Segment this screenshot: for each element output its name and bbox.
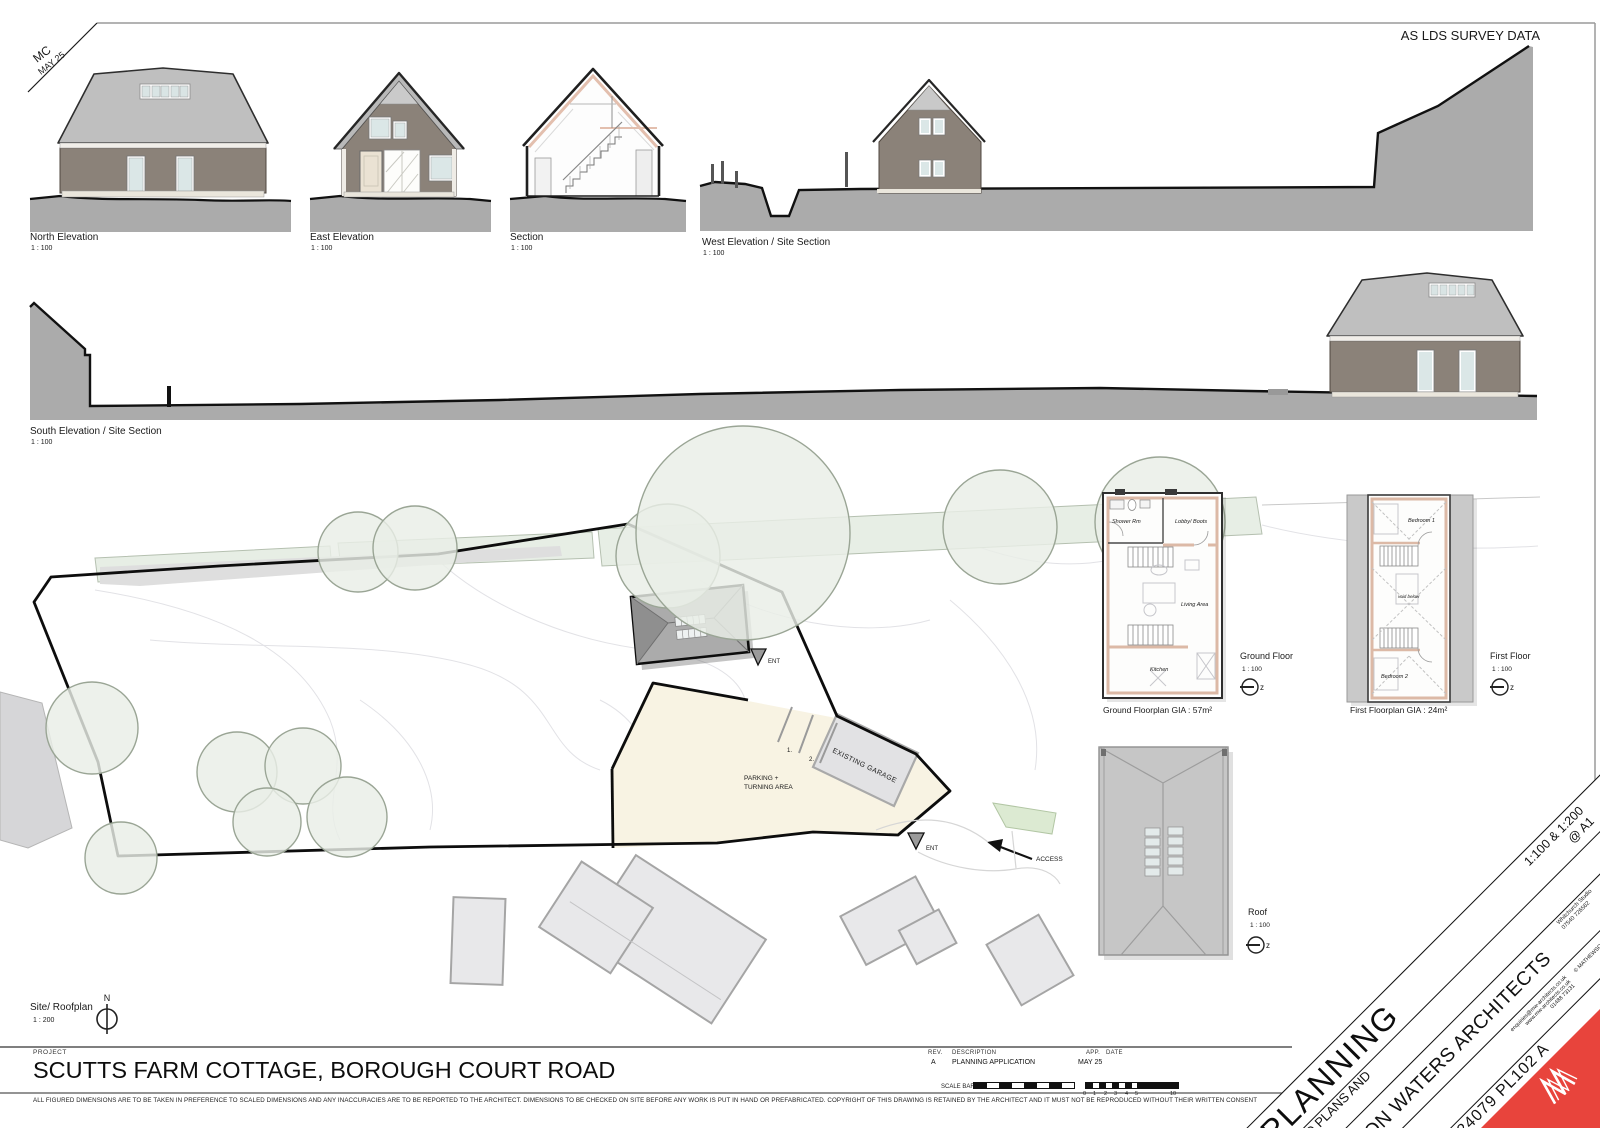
roof-plan-label: Roof — [1248, 907, 1268, 917]
site-plan-label: Site/ Roofplan — [30, 1002, 93, 1013]
site-plan-drawing: EXISTING GARAGE 1. 2. PARKING + TURNING … — [0, 426, 1540, 1034]
east-elevation-drawing: East Elevation 1 : 100 — [310, 73, 491, 252]
scalebar-2: 2 — [1104, 1091, 1107, 1097]
south-elevation-label: South Elevation / Site Section — [30, 426, 162, 437]
scalebar-0: 0 — [1083, 1091, 1086, 1097]
section-drawing: Section 1 : 100 — [510, 69, 686, 252]
ground-floorplan-drawing: Shower Rm Lobby/ Boots Living Area Kitch… — [1103, 489, 1293, 715]
ground-gia-label: Ground Floorplan GIA : 57m² — [1103, 705, 1212, 715]
project-label: PROJECT — [33, 1049, 67, 1056]
roof-north-letter: z — [1266, 941, 1270, 950]
scale-bar-2 — [1085, 1082, 1139, 1089]
east-elevation-label: East Elevation — [310, 232, 374, 243]
roof-plan-drawing: Roof 1 : 100 z — [1099, 747, 1270, 960]
scalebar-label: SCALE BAR — [941, 1084, 975, 1090]
project-title: SCUTTS FARM COTTAGE, BOROUGH COURT ROAD — [33, 1057, 615, 1084]
first-north-arrow-icon: z — [1490, 679, 1514, 695]
west-elevation-scale: 1 : 100 — [703, 250, 725, 257]
west-elevation-drawing: West Elevation / Site Section 1 : 100 — [700, 46, 1533, 257]
disclaimer-text: ALL FIGURED DIMENSIONS ARE TO BE TAKEN I… — [33, 1097, 1257, 1104]
scalebar-3: 3 — [1114, 1091, 1117, 1097]
roof-north-arrow-icon: z — [1246, 937, 1270, 953]
hedge-strip — [993, 803, 1056, 834]
scalebar-10: 10 — [1170, 1091, 1176, 1097]
rev-header: REV. — [928, 1050, 943, 1056]
section-scale: 1 : 100 — [511, 245, 533, 252]
revision-description: PLANNING APPLICATION — [952, 1059, 1035, 1066]
first-north-letter: z — [1510, 683, 1514, 692]
site-north-letter: N — [104, 993, 111, 1003]
room-label-living: Living Area — [1181, 602, 1208, 608]
date-header: DATE — [1106, 1050, 1123, 1056]
ent-label-1: ENT — [768, 659, 780, 665]
parking-label-2: TURNING AREA — [744, 784, 793, 791]
north-elevation-drawing: North Elevation 1 : 100 — [30, 68, 291, 252]
parking-bay-2: 2. — [809, 757, 814, 763]
sheet-graphics: MC MAY 25 AS LDS SURVEY DATA North Eleva… — [0, 0, 1600, 1128]
entrance-marker-2 — [908, 833, 924, 849]
ground-north-letter: z — [1260, 683, 1264, 692]
site-north-arrow-icon: N — [97, 993, 117, 1034]
south-elevation-drawing: South Elevation / Site Section 1 : 100 — [30, 273, 1537, 446]
north-elevation-label: North Elevation — [30, 232, 98, 243]
scale-bar-3 — [1137, 1082, 1179, 1089]
site-plan-scale: 1 : 200 — [33, 1017, 55, 1024]
scale-bar-1 — [973, 1082, 1075, 1089]
east-elevation-scale: 1 : 100 — [311, 245, 333, 252]
north-clerestory-windows — [142, 86, 188, 97]
room-label-bed2: Bedroom 2 — [1381, 674, 1408, 680]
first-floorplan-drawing: Bedroom 1 void below Bedroom 2 First Flo… — [1347, 495, 1531, 715]
revision-date: MAY 25 — [1078, 1059, 1102, 1066]
section-label: Section — [510, 232, 543, 243]
room-label-bed1: Bedroom 1 — [1408, 518, 1435, 524]
ground-floor-label: Ground Floor — [1240, 651, 1293, 661]
scalebar-4: 4 — [1125, 1091, 1128, 1097]
ent-label-2: ENT — [926, 846, 938, 852]
access-label: ACCESS — [1036, 856, 1063, 863]
checked-stamp: MC MAY 25 — [27, 38, 67, 77]
scalebar-5: 5 — [1135, 1091, 1138, 1097]
scalebar-1: 1 — [1093, 1091, 1096, 1097]
roof-plan-scale: 1 : 100 — [1250, 922, 1270, 929]
ground-floor-scale: 1 : 100 — [1242, 666, 1262, 673]
south-elevation-scale: 1 : 100 — [31, 439, 53, 446]
ground-north-arrow-icon: z — [1240, 679, 1264, 695]
description-header: DESCRIPTION — [952, 1050, 996, 1056]
room-label-shower: Shower Rm — [1112, 519, 1141, 525]
parking-bay-1: 1. — [787, 748, 792, 754]
room-label-lobby: Lobby/ Boots — [1175, 519, 1207, 525]
drawing-sheet: MC MAY 25 AS LDS SURVEY DATA North Eleva… — [0, 0, 1600, 1128]
app-header: APP. — [1086, 1050, 1100, 1056]
first-gia-label: First Floorplan GIA : 24m² — [1350, 705, 1447, 715]
parking-label-1: PARKING + — [744, 775, 779, 782]
survey-note: AS LDS SURVEY DATA — [1401, 28, 1541, 43]
room-label-void: void below — [1398, 594, 1420, 599]
room-label-kitchen: Kitchen — [1150, 667, 1168, 673]
existing-buildings — [451, 832, 1074, 1034]
north-elevation-scale: 1 : 100 — [31, 245, 53, 252]
west-elevation-label: West Elevation / Site Section — [702, 237, 830, 248]
first-floor-label: First Floor — [1490, 651, 1531, 661]
first-floor-scale: 1 : 100 — [1492, 666, 1512, 673]
revision-letter: A — [931, 1059, 936, 1066]
